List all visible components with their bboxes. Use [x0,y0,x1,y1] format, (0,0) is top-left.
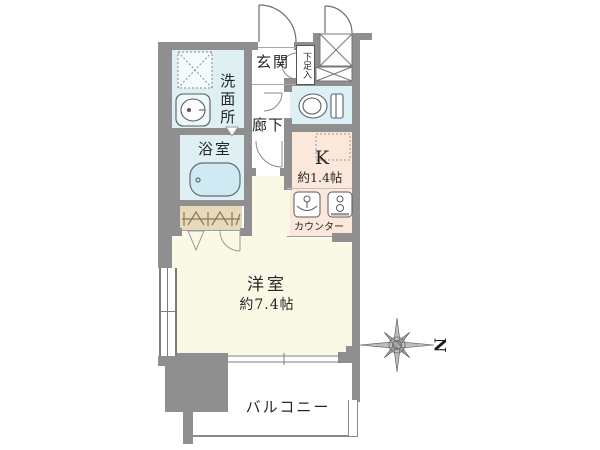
entrance-door-arc [259,5,296,42]
balcony-sliding-door [228,353,340,365]
western-room-size-label: 約7.4帖 [192,297,342,313]
bathroom-label: 浴室 [188,141,242,158]
kitchen-label: K [292,148,352,170]
toilet-door-arc [264,93,282,111]
meter-box [320,34,352,66]
hallway-label: 廊下 [250,117,286,134]
floor-plan: N 下足入 玄関 洗面所 浴室 廊下 K 約1.4帖 カウンター 洋室 約7.4… [0,0,600,450]
toilet-icon [299,94,343,118]
western-room-label: 洋室 [192,276,342,296]
room-door-arc [256,141,282,167]
counter-label: カウンター [287,222,351,234]
compass-icon: N [360,318,450,372]
shoe-storage-label: 下足入 [301,52,310,79]
balcony-label: バルコニー [228,399,348,416]
shoe-storage-box: 下足入 [296,45,315,85]
washing-machine-pan-icon [178,52,212,88]
bathtub-icon [190,163,240,196]
closet-folding-door-icon [182,212,240,226]
compass-north-label: N [431,338,450,353]
washbasin-icon [176,94,210,126]
closet-door-marks [188,231,240,251]
pipe-space [316,67,352,81]
kitchen-sink-icon [294,192,320,217]
kitchen-size-label: 約1.4帖 [288,171,352,185]
genkan-label: 玄関 [250,54,296,71]
meter-box-door-arc [325,6,352,33]
kitchen-stove-icon [328,192,352,217]
washroom-label: 洗面所 [218,58,235,142]
